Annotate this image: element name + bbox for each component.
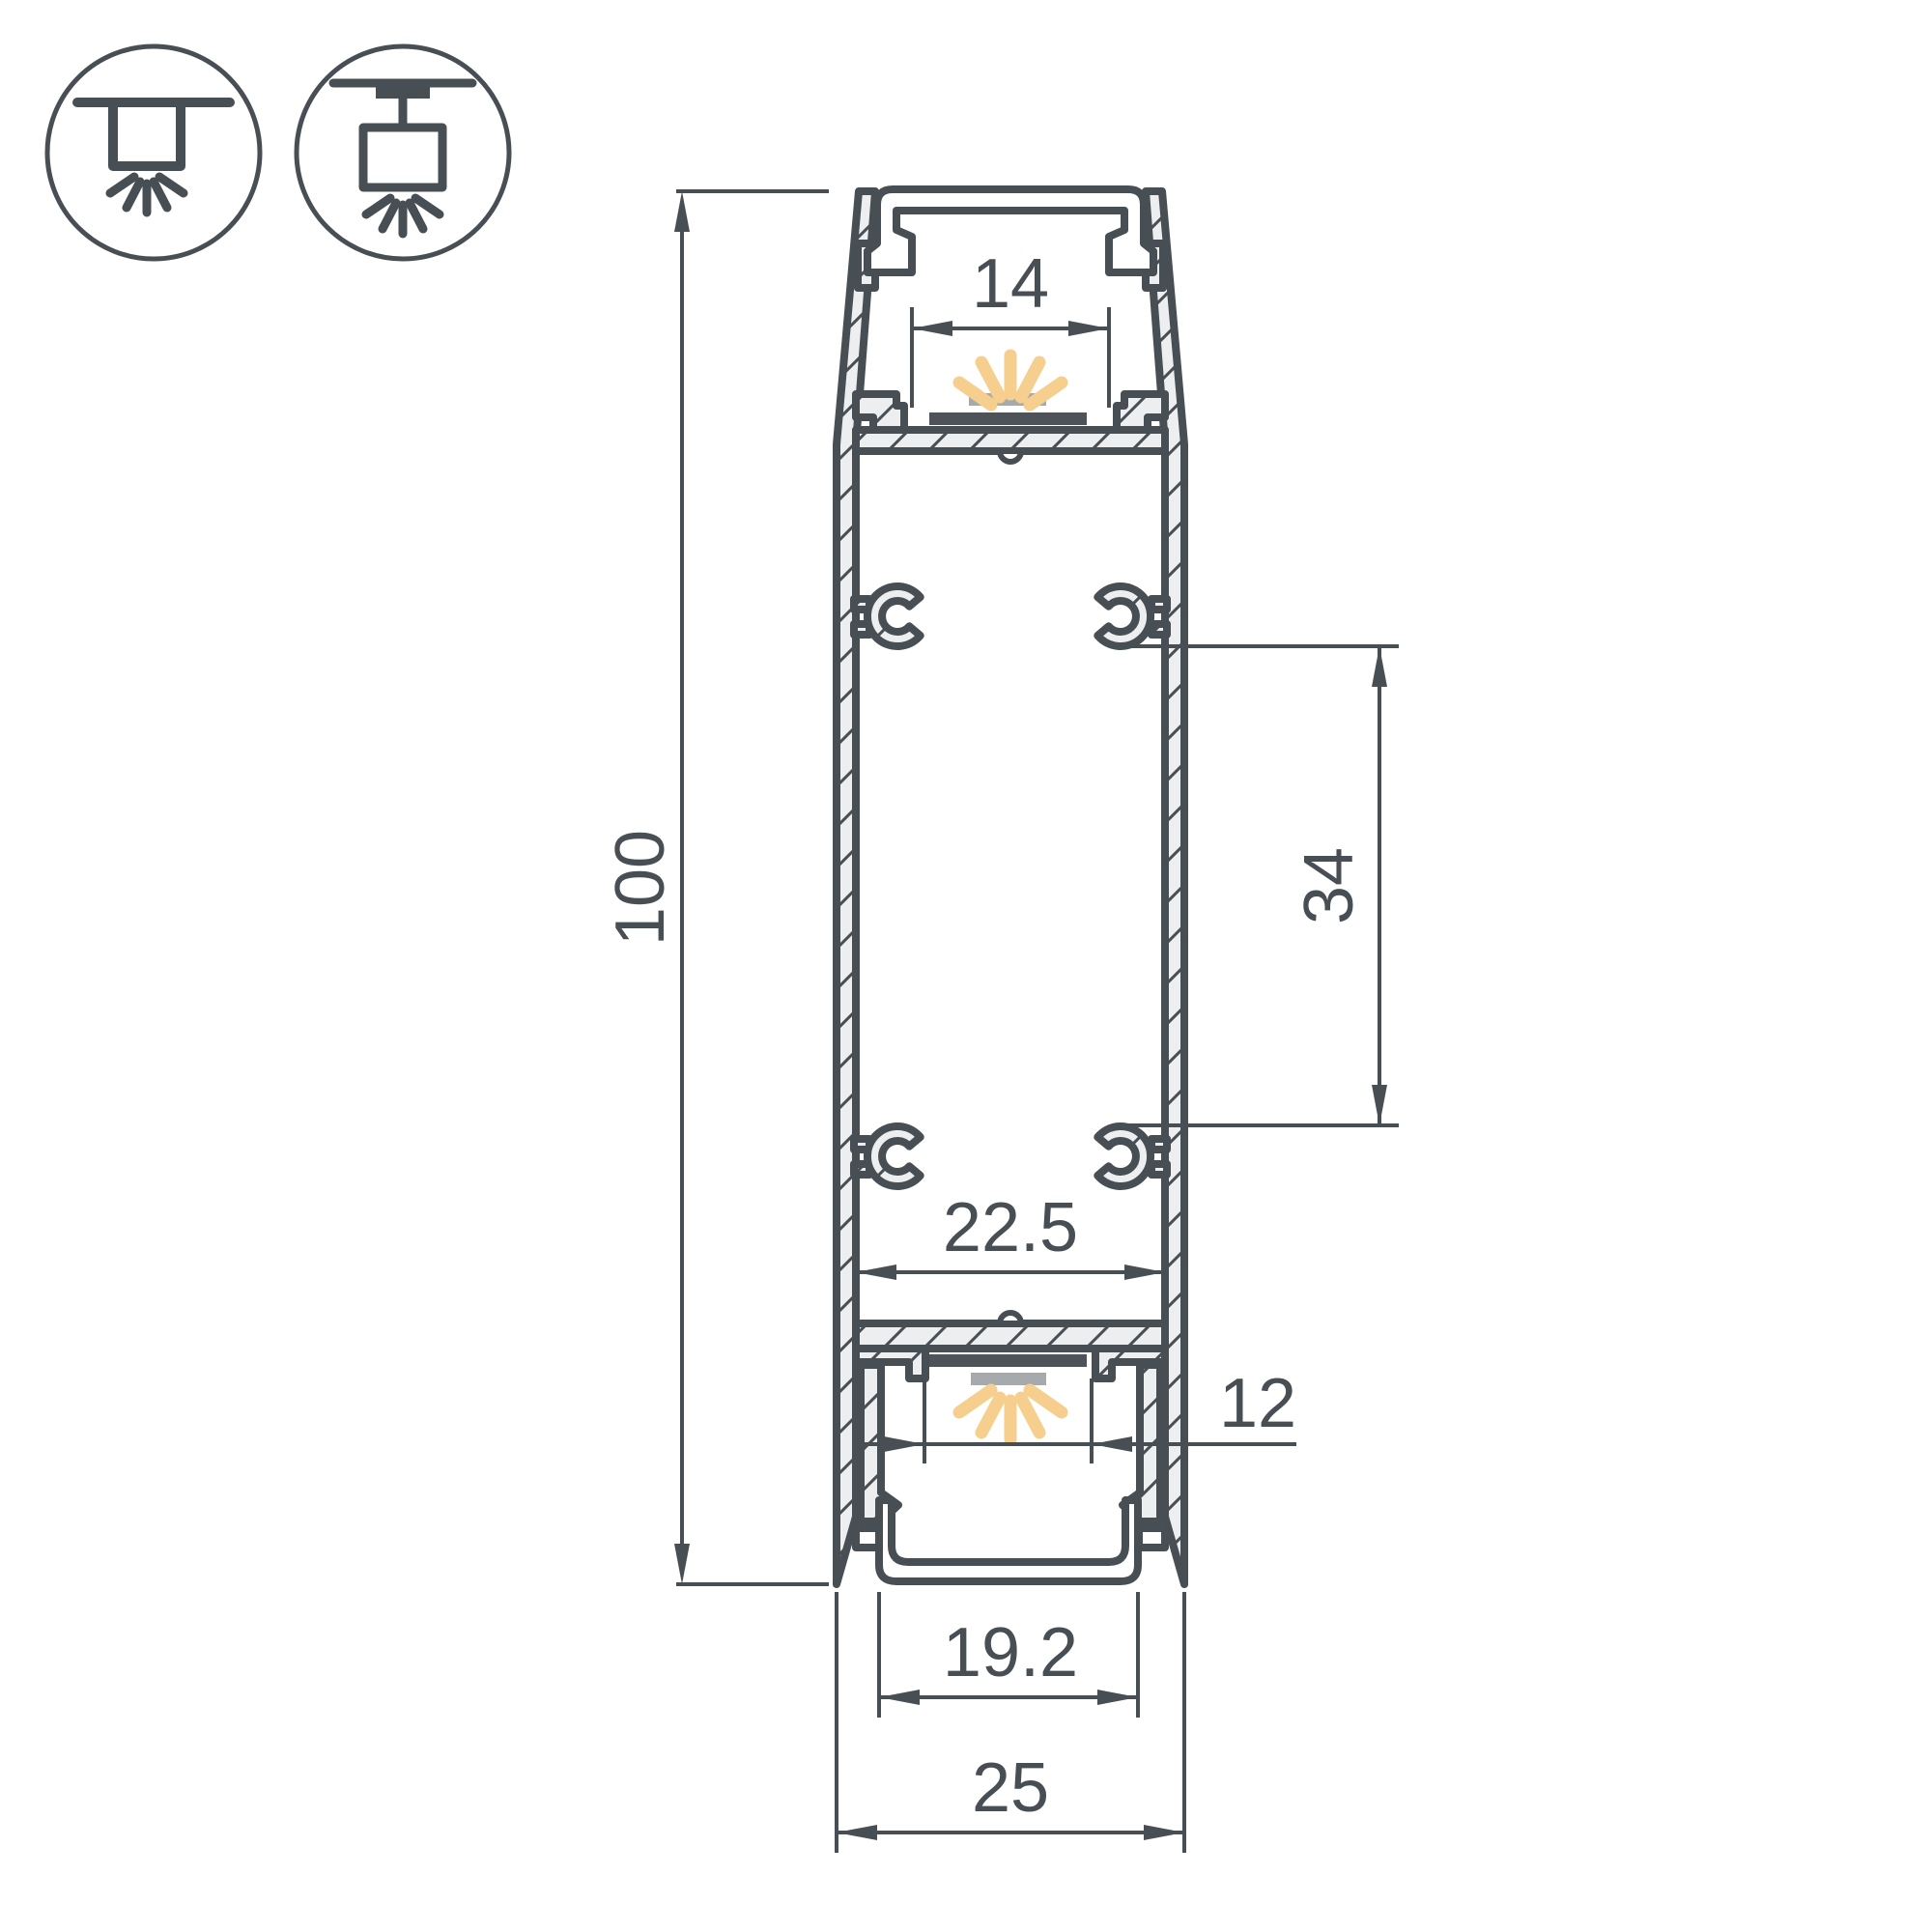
profile-cross-section	[837, 189, 1184, 1584]
screw-groove-mark	[1000, 1313, 1021, 1323]
fixture-box	[113, 102, 181, 166]
top-right-rib	[1117, 394, 1165, 430]
dim-inner-cavity-label: 22.5	[943, 1189, 1078, 1266]
pendant-mount-icon	[297, 46, 509, 259]
bottom-light-rays	[959, 1390, 1062, 1439]
light-rays-icon	[110, 177, 184, 213]
dimension-boss-spacing: 34	[1117, 646, 1399, 1125]
fixture-box	[363, 128, 442, 187]
dimension-overall-height: 100	[602, 191, 829, 1584]
top-pcb	[929, 412, 1087, 425]
screw-boss-top-left	[867, 586, 921, 646]
bottom-diffuser	[879, 1500, 1138, 1581]
screw-groove-mark	[1000, 451, 1021, 462]
bottom-led-strip	[929, 1354, 1087, 1439]
bottom-pcb	[929, 1354, 1087, 1367]
dim-overall-height-label: 100	[602, 830, 679, 946]
dim-bottom-opening-label: 12	[1219, 1365, 1296, 1442]
top-channel-floor	[856, 430, 1165, 451]
dimension-diffuser-width: 19.2	[879, 1592, 1138, 1718]
top-left-rib	[856, 394, 904, 430]
dim-top-opening-label: 14	[972, 245, 1049, 323]
dim-diffuser-width-label: 19.2	[943, 1614, 1078, 1691]
dimension-bottom-opening: 12	[860, 1365, 1296, 1463]
dim-overall-width-label: 25	[972, 1749, 1049, 1827]
surface-mount-icon	[47, 46, 260, 259]
led-profile-drawing: 100 14 34 22.5 12	[0, 0, 1932, 1932]
top-light-rays	[959, 355, 1062, 405]
icon-circle	[47, 46, 260, 259]
top-led-strip	[929, 355, 1087, 425]
light-rays-icon	[366, 198, 440, 234]
screw-boss-bottom-right	[1097, 1126, 1151, 1186]
screw-bosses	[854, 586, 1167, 1186]
technical-drawing-canvas: 100 14 34 22.5 12	[0, 0, 1932, 1932]
screw-boss-bottom-left	[867, 1126, 921, 1186]
diffuser-right-tab	[1139, 1528, 1165, 1548]
dimension-inner-cavity: 22.5	[856, 1189, 1165, 1280]
dim-boss-spacing-label: 34	[1291, 847, 1368, 924]
bottom-led	[971, 1373, 1046, 1385]
screw-boss-top-right	[1097, 586, 1151, 646]
